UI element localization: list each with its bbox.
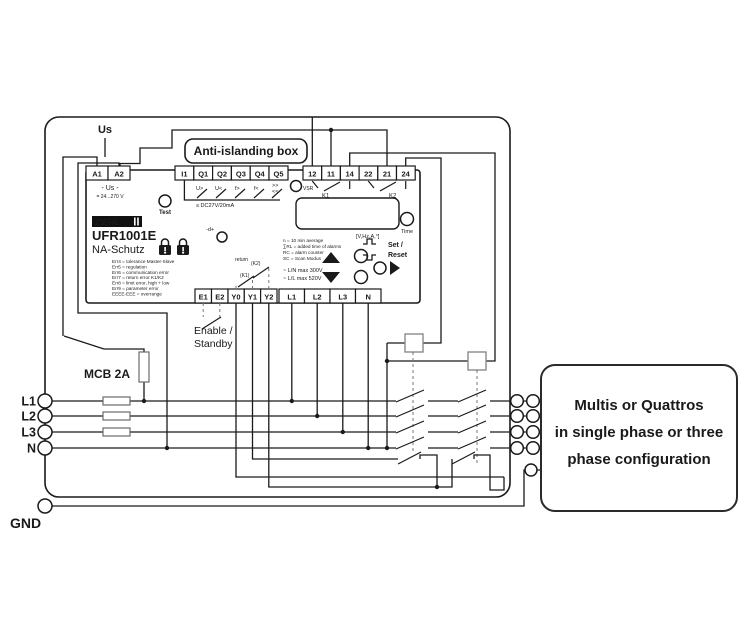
standby-label: Standby [194, 338, 233, 350]
junction-dots [142, 128, 439, 489]
return-label: return [235, 257, 248, 263]
wiring-diagram: Us Anti-islanding box [0, 0, 748, 638]
svg-text:Err4 = tolerance Master-Slave: Err4 = tolerance Master-Slave [112, 259, 175, 264]
svg-text:n = 10 min average: n = 10 min average [283, 238, 324, 243]
up-ok-button [355, 250, 368, 263]
svg-text:L3: L3 [338, 293, 347, 302]
us-supply-label: Us [98, 124, 112, 136]
vsr-led [291, 181, 302, 192]
svg-text:Q5: Q5 [273, 170, 283, 179]
svg-text:Multis or Quattros: Multis or Quattros [574, 397, 703, 414]
adjust-label: -d+ [206, 227, 214, 233]
enable-dashed-links [203, 303, 220, 317]
svg-text:Err9 = parameter error: Err9 = parameter error [112, 286, 159, 291]
svg-text:RC = alarm counter: RC = alarm counter [283, 250, 324, 255]
down-button [322, 272, 340, 283]
svg-text:11: 11 [327, 170, 335, 179]
contactor-contact-blades [396, 390, 486, 449]
feedback-loop-wires [236, 303, 504, 490]
multis-label: Multis or Quattros in single phase or th… [555, 397, 723, 468]
svg-text:L2: L2 [313, 293, 322, 302]
bus-wires [52, 390, 541, 449]
svg-text:E1: E1 [199, 293, 208, 302]
relay-drop-wires [236, 303, 504, 490]
svg-text:A1: A1 [92, 170, 102, 179]
adjust-button [217, 232, 227, 242]
svg-text:L2: L2 [21, 410, 36, 424]
svg-text:L1: L1 [287, 293, 296, 302]
svg-text:12: 12 [308, 170, 316, 179]
time-button [401, 213, 414, 226]
svg-text:L3: L3 [21, 426, 36, 440]
q2-function: U< [215, 186, 222, 192]
set-label: Set / [388, 242, 403, 249]
k2-output-wire [406, 158, 441, 343]
max-ll-note: ~ L/L max 520V [283, 276, 322, 282]
max-ln-note: ~ L/N max 300V [283, 268, 323, 274]
svg-text:22: 22 [364, 170, 372, 179]
relay-bottom-terminals: E1 E2 Y0 Y1 Y2 L1 L2 L3 N [195, 289, 381, 303]
svg-text:A2: A2 [114, 170, 124, 179]
return-k1-label: (K1) [240, 273, 250, 279]
q5-function-b: << [272, 189, 278, 195]
svg-text:N: N [27, 442, 36, 456]
return-k2-label: (K2) [251, 261, 261, 267]
error-legend: Err4 = tolerance Master-Slave Err5 = reg… [112, 259, 175, 296]
gnd-label: GND [10, 515, 41, 531]
fuse-l2 [103, 412, 130, 420]
mcb-fuse [139, 352, 149, 382]
svg-text:21: 21 [383, 170, 391, 179]
up-button [322, 252, 340, 263]
gnd-terminal [38, 499, 52, 513]
q3-function: f> [235, 186, 240, 192]
svg-text:phase configuration: phase configuration [567, 451, 710, 468]
svg-text:L1: L1 [21, 395, 36, 409]
svg-text:Err7 = return error K1/K2: Err7 = return error K1/K2 [112, 275, 164, 280]
svg-text:Y0: Y0 [231, 293, 240, 302]
fuse-l1 [103, 397, 130, 405]
svg-text:Err8 = limit error, high + low: Err8 = limit error, high + low [112, 281, 170, 286]
mcb-label: MCB 2A [84, 367, 130, 381]
model-label: UFR1001E [92, 228, 157, 243]
fuse-l3 [103, 428, 130, 436]
svg-text:N: N [365, 293, 370, 302]
contactor-coil-1 [405, 334, 423, 352]
multis-ground-connector [525, 464, 537, 476]
svg-text:Err6 = communication error: Err6 = communication error [112, 270, 169, 275]
svg-text:in single phase or three: in single phase or three [555, 424, 723, 441]
q1-function: U> [196, 186, 203, 192]
relay-top-terminals: A1 A2 I1 Q1 Q2 Q3 Q4 Q5 12 11 14 22 21 2… [86, 166, 415, 180]
svg-text:∑RL = added time of alarms: ∑RL = added time of alarms [283, 244, 342, 249]
k2-contact-glyph [368, 181, 405, 191]
time-label: Time [401, 229, 413, 235]
svg-text:Y1: Y1 [248, 293, 257, 302]
k1-contact-glyph [312, 181, 349, 191]
contactor-coil-2 [468, 352, 486, 370]
svg-text:Q3: Q3 [236, 170, 246, 179]
svg-text:Q2: Q2 [217, 170, 227, 179]
phase-drop-wires [292, 303, 368, 448]
q4-function: f< [254, 186, 259, 192]
svg-text:24: 24 [402, 170, 411, 179]
svg-text:SC = Scan Modus: SC = Scan Modus [283, 256, 322, 261]
test-label: Test [159, 210, 171, 216]
mcb-switch-blade [64, 336, 104, 349]
svg-text:Y2: Y2 [264, 293, 273, 302]
svg-text:I1: I1 [181, 170, 187, 179]
us-inner-label: - Us - [101, 185, 119, 192]
right-arrow-icon [390, 261, 400, 275]
down-ok-button [355, 271, 368, 284]
us-range-label: = 24...270 V [96, 194, 124, 200]
multis-connectors [511, 395, 540, 476]
reset-label: Reset [388, 252, 408, 259]
set-reset-button [374, 262, 386, 274]
svg-text:EEEE-EEE = overrange: EEEE-EEE = overrange [112, 291, 162, 296]
lcd-display [296, 198, 399, 229]
vsr-label: VSR [303, 186, 314, 192]
test-button [159, 195, 171, 207]
svg-text:Q4: Q4 [255, 170, 266, 179]
svg-text:E2: E2 [215, 293, 224, 302]
padlock-icons [159, 239, 189, 255]
enable-label: Enable / [194, 325, 233, 337]
svg-text:14: 14 [346, 170, 355, 179]
brand-label: ZIEHL [94, 217, 120, 227]
anti-islanding-label: Anti-islanding box [194, 144, 299, 158]
svg-text:Err5 = regulation: Err5 = regulation [112, 264, 147, 269]
gnd-wire [52, 470, 547, 506]
type-label: NA-Schutz [92, 244, 145, 256]
relay-faceplate: - Us - = 24...270 V ZIEHL UFR1001E NA-Sc… [92, 180, 414, 296]
dc-note: ≤ DC27V/20mA [196, 203, 235, 209]
svg-text:Q1: Q1 [198, 170, 208, 179]
